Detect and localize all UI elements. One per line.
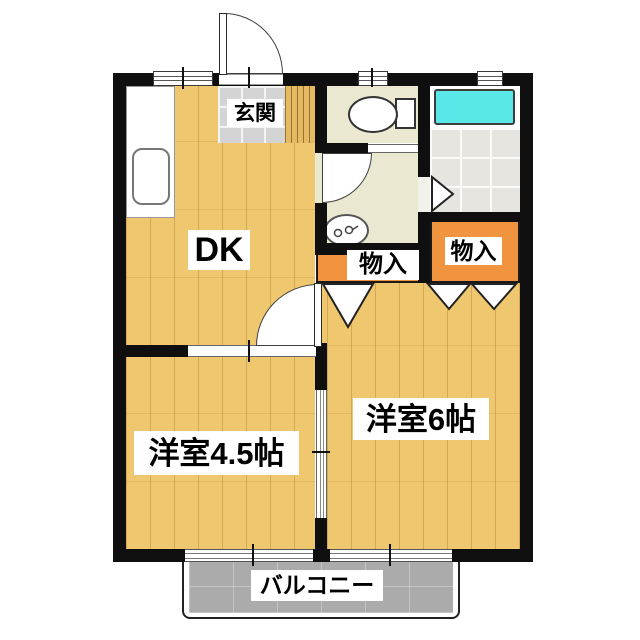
genkan-label: 玄関 (227, 99, 283, 127)
bath-folding-door-icon (432, 177, 453, 211)
genkan-label-text: 玄関 (234, 103, 276, 124)
closet-bedroom-door2-icon (472, 284, 516, 309)
closet-hall-door-icon (323, 284, 373, 327)
western45-label-text: 洋室4.5帖 (148, 438, 284, 469)
closet-bedroom-label-text: 物入 (451, 240, 497, 263)
closet-bedroom-label: 物入 (445, 237, 502, 265)
closet-hall-label: 物入 (347, 250, 419, 280)
closet-bedroom-door1-icon (428, 284, 470, 309)
plan-symbols-layer (0, 0, 640, 640)
closet-hall-label-text: 物入 (359, 253, 407, 277)
dk-label-text: DK (194, 233, 243, 267)
washbasin-faucet-icon (335, 226, 359, 237)
western45-label: 洋室4.5帖 (134, 431, 299, 475)
western6-label-text: 洋室6帖 (366, 404, 476, 435)
balcony-label-text: バルコニー (260, 574, 375, 597)
module-tick-marks (183, 67, 390, 566)
balcony-label: バルコニー (251, 570, 383, 601)
western6-label: 洋室6帖 (353, 398, 489, 440)
floorplan-canvas: 玄関 DK 物入 物入 洋室4.5帖 洋室6帖 バルコニー (0, 0, 640, 640)
dk-label: DK (188, 230, 250, 270)
